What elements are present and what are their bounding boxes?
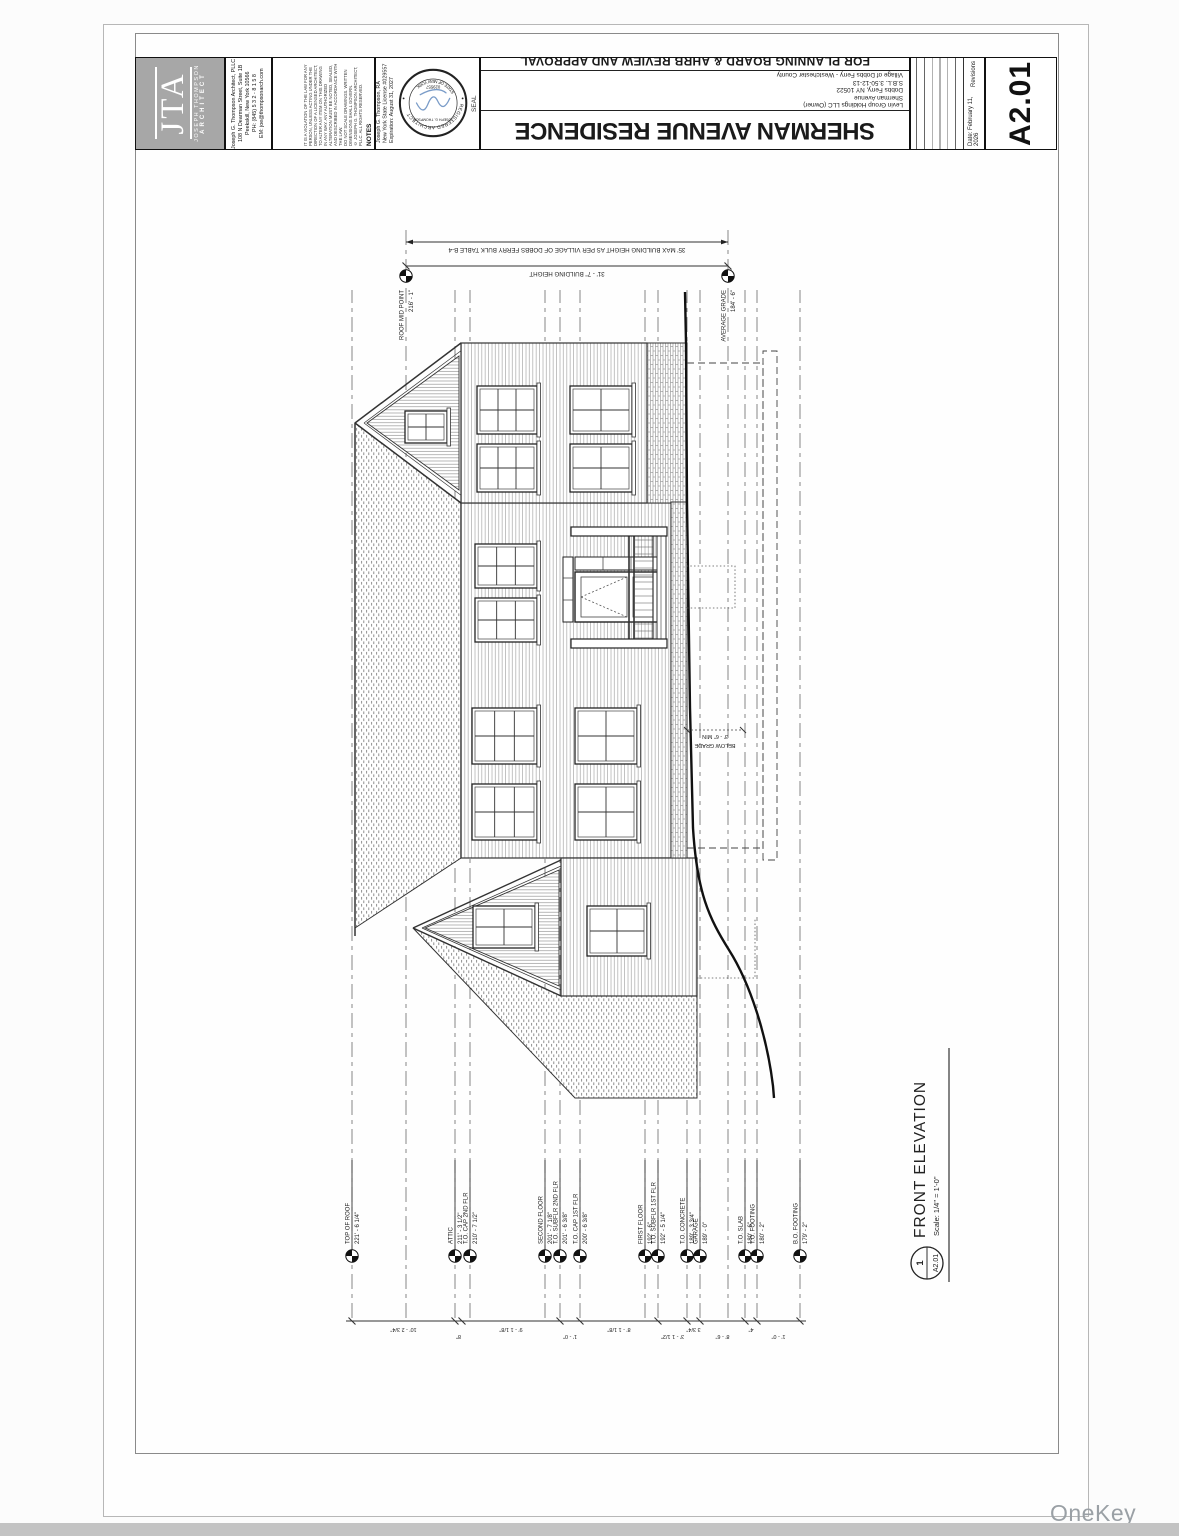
svg-text:10' - 2 3/4": 10' - 2 3/4" <box>390 1326 416 1332</box>
jta-logo: JTA JOSEPH THOMPSON ARCHITECT <box>140 61 220 147</box>
svg-text:T.O. SUBFLR 1ST FLR: T.O. SUBFLR 1ST FLR <box>652 1181 658 1244</box>
svg-text:T.O. CONCRETE: T.O. CONCRETE <box>681 1198 687 1244</box>
date-label: Date: February 11, 2026 <box>968 87 980 146</box>
jta-logo-title: ARCHITECT <box>200 73 206 135</box>
svg-text:8": 8" <box>456 1333 461 1339</box>
svg-text:Scale: 1/4" = 1'-0": Scale: 1/4" = 1'-0" <box>932 1176 941 1236</box>
svg-text:200' - 6 3/8": 200' - 6 3/8" <box>583 1212 589 1244</box>
svg-text:T.O. CAP 1ST FLR: T.O. CAP 1ST FLR <box>574 1193 580 1244</box>
svg-text:REGISTERED ARCHITECT: REGISTERED ARCHITECT <box>406 104 464 131</box>
sheet-number: A2.01 <box>1004 61 1038 146</box>
title-block: A2.01 Date: February 11, 2026 Revisions … <box>135 57 1057 150</box>
firm-logo-cell: JTA JOSEPH THOMPSON ARCHITECT <box>136 58 224 149</box>
svg-text:3' - 1 1/2": 3' - 1 1/2" <box>661 1333 684 1339</box>
svg-text:BELOW GRADE: BELOW GRADE <box>694 742 735 748</box>
svg-text:SECOND FLOOR: SECOND FLOOR <box>539 1195 545 1244</box>
architect-contact: Joseph G. Thompson Architect, PLLC 108 N… <box>231 58 266 148</box>
svg-text:184' - 6": 184' - 6" <box>731 290 737 312</box>
scan-edge-band <box>0 1523 1179 1536</box>
approval-note: FOR PLANNING BOARD & AHRB REVIEW AND APP… <box>481 58 909 70</box>
svg-text:189' - 0": 189' - 0" <box>703 1222 709 1244</box>
svg-text:8' - 6": 8' - 6" <box>715 1333 729 1339</box>
svg-text:1' - 0": 1' - 0" <box>563 1333 577 1339</box>
elevation-drawing-area: BELOW GRADE3' - 6" MIN10' - 2 3/4"8"9' -… <box>335 228 955 1350</box>
svg-text:FRONT ELEVATION: FRONT ELEVATION <box>912 1081 929 1238</box>
revision-table-lines <box>911 58 963 149</box>
revisions-cell: Date: February 11, 2026 Revisions <box>909 58 984 149</box>
svg-text:4": 4" <box>748 1326 753 1332</box>
notes-cell: NOTES IT IS A VIOLATION OF THE LAW FOR A… <box>271 58 374 149</box>
svg-text:180' - 2": 180' - 2" <box>760 1222 766 1244</box>
svg-text:T.O. CAP 2ND FLR: T.O. CAP 2ND FLR <box>464 1192 470 1244</box>
license-info: Joseph G. Thompson, RA New York State Li… <box>376 64 395 143</box>
svg-text:179' - 2": 179' - 2" <box>803 1222 809 1244</box>
svg-text:B.O. FOOTING: B.O. FOOTING <box>794 1203 800 1244</box>
svg-text:GARAGE: GARAGE <box>694 1218 700 1244</box>
svg-text:029557: 029557 <box>425 85 440 90</box>
project-title: SHERMAN AVENUE RESIDENCE <box>481 110 909 149</box>
svg-text:35' MAX BUILDING HEIGHT AS PER: 35' MAX BUILDING HEIGHT AS PER VILLAGE O… <box>448 246 685 253</box>
notes-label: NOTES <box>365 58 374 149</box>
scanned-drawing-sheet: A2.01 Date: February 11, 2026 Revisions … <box>0 0 1179 1536</box>
svg-text:221' - 6 1/4": 221' - 6 1/4" <box>355 1212 361 1244</box>
svg-text:192' - 5 1/4": 192' - 5 1/4" <box>661 1212 667 1244</box>
svg-text:JOSEPH G. THOMPSON: JOSEPH G. THOMPSON <box>413 118 453 122</box>
seal-label: SEAL <box>471 95 478 112</box>
svg-text:8' - 1 1/8": 8' - 1 1/8" <box>607 1326 630 1332</box>
svg-text:3' - 6" MIN: 3' - 6" MIN <box>702 733 728 739</box>
svg-text:210' - 7 1/2": 210' - 7 1/2" <box>473 1212 479 1244</box>
architect-seal-stamp-icon: REGISTERED ARCHITECTSTATE OF NEW YORKJOS… <box>396 63 470 145</box>
svg-text:T.O. SUBFLR 2ND FLR: T.O. SUBFLR 2ND FLR <box>554 1180 560 1244</box>
front-elevation-drawing: BELOW GRADE3' - 6" MIN10' - 2 3/4"8"9' -… <box>335 228 955 1348</box>
sheet-number-cell: A2.01 <box>984 58 1056 149</box>
svg-text:T.O. SLAB: T.O. SLAB <box>739 1216 745 1244</box>
svg-text:ATTIC: ATTIC <box>449 1226 455 1244</box>
svg-text:ROOF MID POINT: ROOF MID POINT <box>400 290 406 340</box>
svg-text:201' - 6 3/8": 201' - 6 3/8" <box>563 1212 569 1244</box>
svg-text:9' - 1 1/8": 9' - 1 1/8" <box>499 1326 522 1332</box>
svg-text:TOP OF ROOF: TOP OF ROOF <box>346 1203 352 1244</box>
svg-text:216' - 1": 216' - 1" <box>409 290 415 312</box>
project-address: Levin Group Holdings LLC (Owner) Sherman… <box>481 70 909 110</box>
svg-text:1: 1 <box>915 1260 926 1266</box>
project-title-cell: SHERMAN AVENUE RESIDENCE Levin Group Hol… <box>479 58 909 149</box>
svg-text:T.O. FOOTING: T.O. FOOTING <box>751 1204 757 1244</box>
svg-text:FIRST FLOOR: FIRST FLOOR <box>639 1204 645 1244</box>
svg-text:1' - 0": 1' - 0" <box>771 1333 785 1339</box>
svg-text:31' - 7" BUILDING HEIGHT: 31' - 7" BUILDING HEIGHT <box>529 270 604 277</box>
svg-text:AVERAGE GRADE: AVERAGE GRADE <box>722 290 728 342</box>
notes-text: IT IS A VIOLATION OF THE LAW FOR ANY PER… <box>301 58 365 149</box>
svg-text:3 3/4": 3 3/4" <box>686 1326 700 1332</box>
architect-contact-cell: Joseph G. Thompson Architect, PLLC 108 N… <box>224 58 271 149</box>
seal-cell: SEAL REGISTERED ARCHITECTSTATE OF NEW YO… <box>374 58 479 149</box>
svg-text:A2.01: A2.01 <box>933 1254 940 1272</box>
revisions-label: Revisions <box>971 61 977 87</box>
jta-logo-initials: JTA <box>155 68 192 139</box>
